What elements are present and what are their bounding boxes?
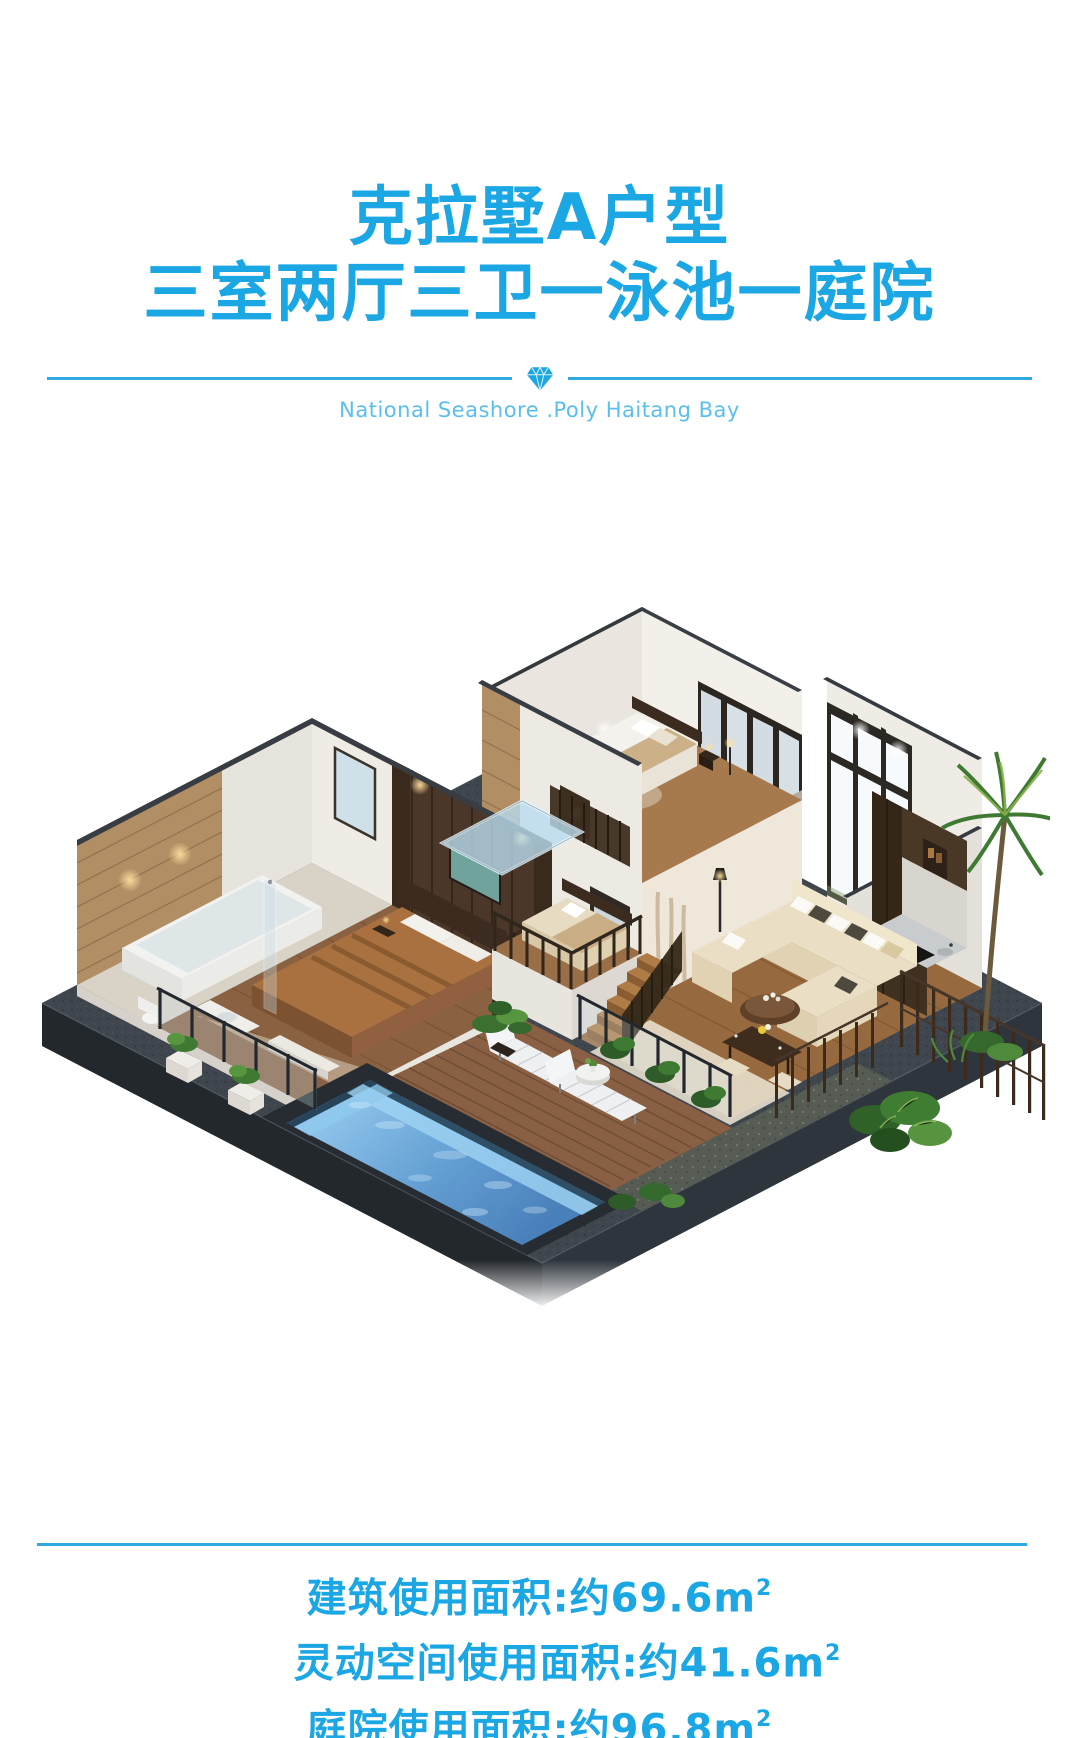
footer-divider bbox=[37, 1543, 1027, 1546]
area-flex-space: 灵动空间使用面积:约41.6m2 bbox=[294, 1627, 842, 1692]
area-courtyard: 庭院使用面积:约96.8m2 bbox=[307, 1693, 773, 1738]
title-divider bbox=[47, 370, 1032, 386]
villa-illustration bbox=[30, 580, 1050, 1310]
poster-page: 克拉墅A户型 三室两厅三卫一泳池一庭院 National Seashore .P… bbox=[0, 0, 1079, 1738]
area-info: 建筑使用面积:约69.6m2 灵动空间使用面积:约41.6m2 庭院使用面积:约… bbox=[0, 1562, 1079, 1738]
page-title-line2: 三室两厅三卫一泳池一庭院 bbox=[0, 256, 1079, 332]
header: 克拉墅A户型 三室两厅三卫一泳池一庭院 bbox=[0, 180, 1079, 332]
divider-line-right bbox=[568, 377, 1033, 380]
area-line-2: 庭院使用面积:约96.8m2 bbox=[0, 1693, 1079, 1738]
page-title-line1: 克拉墅A户型 bbox=[0, 180, 1079, 256]
diamond-icon bbox=[525, 365, 555, 392]
tagline-en: National Seashore .Poly Haitang Bay bbox=[0, 396, 1079, 424]
divider-line-left bbox=[47, 377, 512, 380]
area-building: 建筑使用面积:约69.6m2 bbox=[307, 1562, 773, 1627]
villa-3d-svg bbox=[30, 580, 1050, 1310]
area-line-1: 建筑使用面积:约69.6m2 灵动空间使用面积:约41.6m2 bbox=[0, 1562, 1079, 1693]
